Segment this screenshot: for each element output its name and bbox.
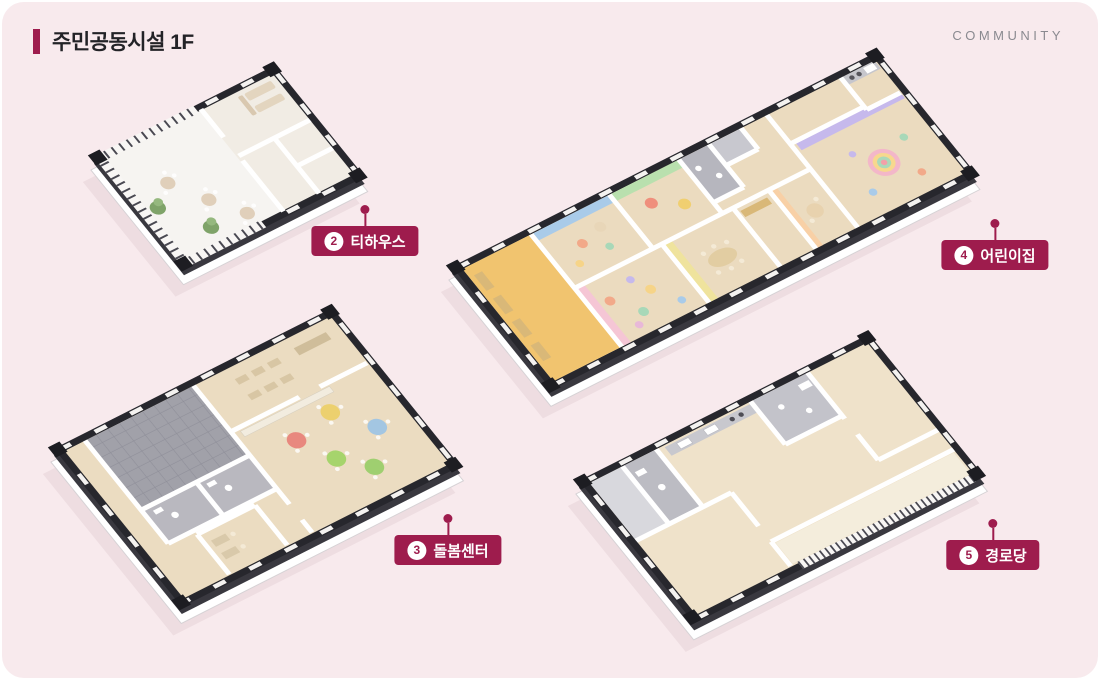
badge-label: 어린이집 [980, 245, 1035, 266]
badge-care-center: 3 돌봄센터 [394, 535, 501, 565]
leader-dot [360, 205, 369, 214]
badge-number: 3 [407, 541, 426, 560]
leader-stem [447, 523, 449, 535]
floorplan-care-center [43, 304, 464, 636]
floorplans-scene [0, 0, 1100, 680]
leader-dot [990, 219, 999, 228]
badge-number: 2 [324, 232, 343, 251]
floorplan-senior-center [568, 330, 988, 652]
leader-dot [443, 514, 452, 523]
leader-dot [989, 519, 998, 528]
floorplan-daycare [441, 48, 980, 419]
leader-stem [994, 228, 996, 240]
badge-senior-center: 5 경로당 [946, 540, 1039, 570]
label-tea-house: 2 티하우스 [311, 205, 418, 256]
badge-number: 5 [959, 546, 978, 565]
label-senior-center: 5 경로당 [946, 519, 1039, 570]
leader-stem [992, 528, 994, 540]
badge-label: 돌봄센터 [433, 540, 488, 561]
floorplan-tea-house [83, 61, 368, 296]
badge-daycare: 4 어린이집 [941, 240, 1048, 270]
label-daycare: 4 어린이집 [941, 219, 1048, 270]
badge-label: 티하우스 [350, 231, 405, 252]
badge-tea-house: 2 티하우스 [311, 226, 418, 256]
leader-stem [364, 214, 366, 226]
badge-number: 4 [954, 246, 973, 265]
label-care-center: 3 돌봄센터 [394, 514, 501, 565]
badge-label: 경로당 [985, 545, 1026, 566]
